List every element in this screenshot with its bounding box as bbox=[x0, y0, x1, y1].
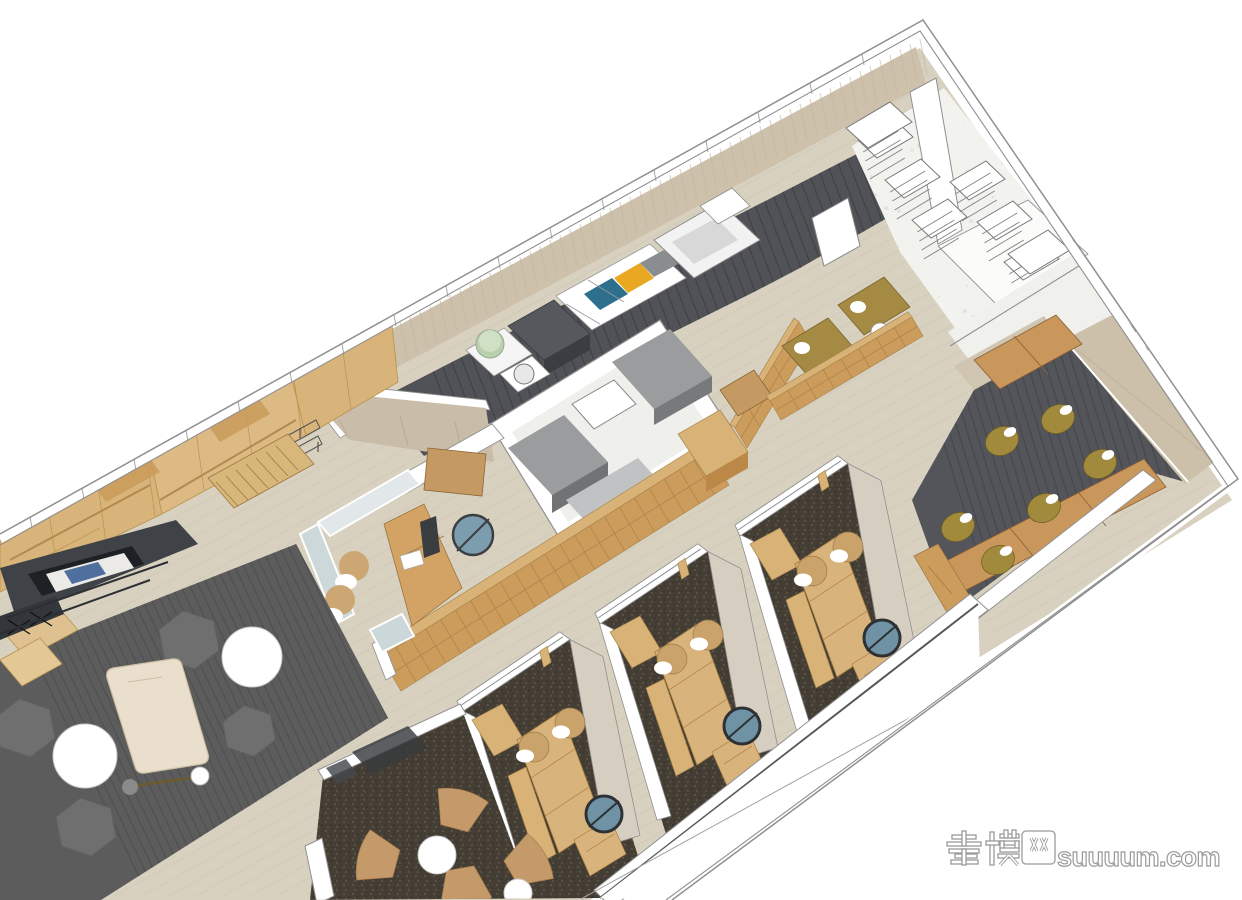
svg-text:suuuum.com: suuuum.com bbox=[1057, 842, 1220, 872]
